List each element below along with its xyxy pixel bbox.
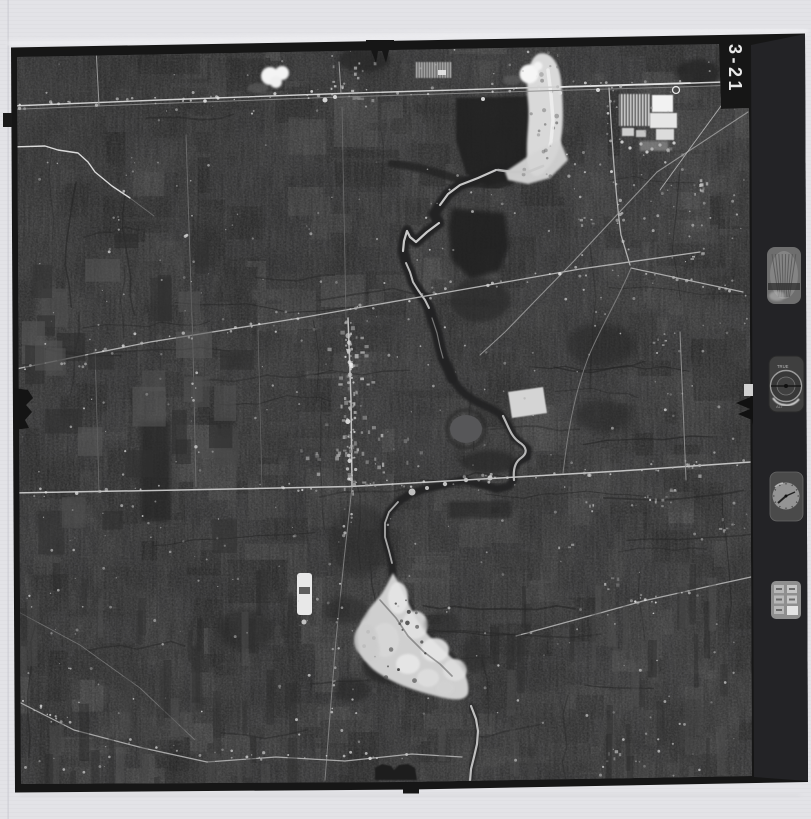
svg-text:3-21: 3-21 <box>725 44 745 94</box>
svg-text:ALT: ALT <box>776 404 784 409</box>
svg-text:TRUE: TRUE <box>777 364 789 369</box>
